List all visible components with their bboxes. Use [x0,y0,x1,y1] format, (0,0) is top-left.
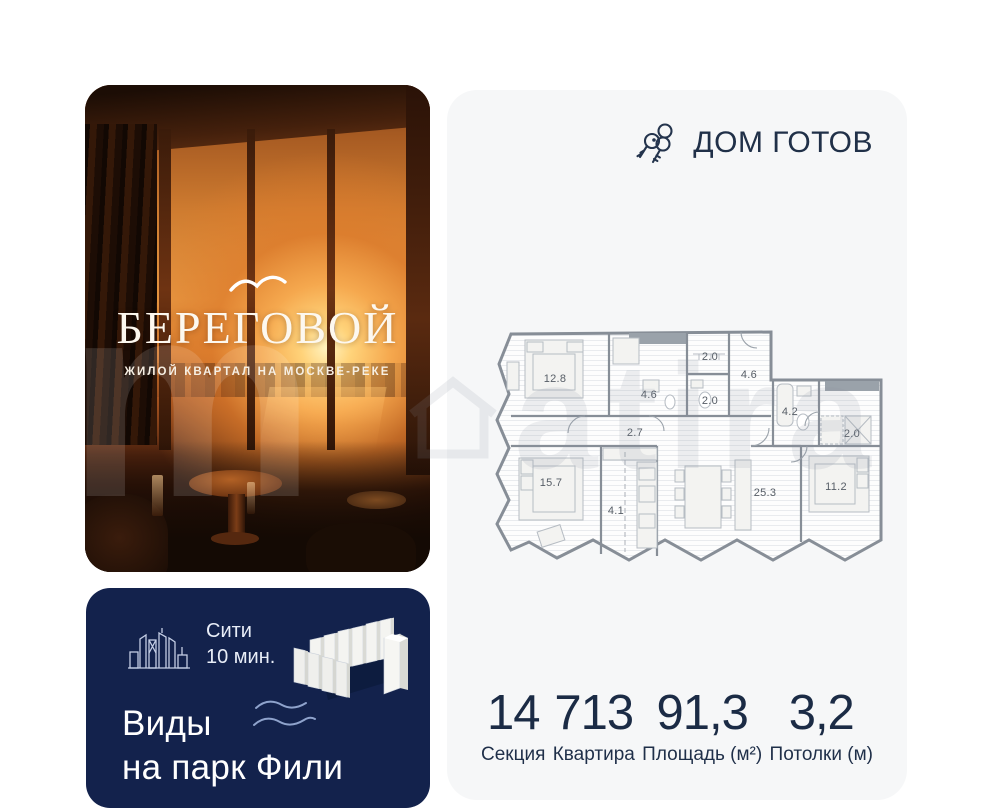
stat-value: 713 [553,688,635,739]
room-area-label: 4.1 [608,505,624,517]
seagull-icon [229,273,287,297]
stat-label: Площадь (м²) [642,744,762,766]
listing-card: ДОМ ГОТОВ [447,90,907,800]
stat-area: 91,3 Площадь (м²) [642,688,762,766]
floorplan: 12.84.62.02.04.62.74.22.015.74.125.311.2 [489,318,885,579]
building-complex-illustration [288,608,416,708]
armchair-silhouette [306,523,416,572]
room-area-label: 2.0 [844,428,860,440]
keys-icon [634,120,680,166]
room-area-label: 2.7 [627,427,643,439]
room-area-label: 4.6 [641,389,657,401]
stat-label: Потолки (м) [770,744,873,766]
room-area-label: 11.2 [825,481,847,493]
room-area-label: 25.3 [754,487,777,499]
photo-card: m БЕРЕГОВОЙ ЖИЛОЙ КВАРТАЛ НА МОСКВЕ-РЕКЕ [85,85,430,572]
room-area-label: 4.2 [782,406,798,418]
stats-row: 14 Секция 713 Квартира 91,3 Площадь (м²)… [481,688,873,766]
room-area-label: 12.8 [544,373,567,385]
stat-ceiling: 3,2 Потолки (м) [770,688,873,766]
brand-block: БЕРЕГОВОЙ ЖИЛОЙ КВАРТАЛ НА МОСКВЕ-РЕКЕ [85,273,430,378]
room-area-label: 2.0 [702,351,718,363]
views-title: Виды на парк Фили [122,702,343,790]
stat-value: 14 [481,688,545,739]
stat-section: 14 Секция [481,688,545,766]
stat-value: 3,2 [770,688,873,739]
house-ready-header: ДОМ ГОТОВ [634,120,873,166]
room-area-label: 15.7 [540,477,563,489]
room-area-label: 2.0 [702,395,718,407]
citi-line2: 10 мин. [206,644,275,670]
views-line1: Виды [122,702,343,746]
views-line2: на парк Фили [122,746,343,790]
stat-label: Квартира [553,744,635,766]
city-distance-text: Сити 10 мин. [206,618,275,670]
info-card: Сити 10 мин. [86,588,430,808]
room-area-label: 4.6 [741,369,757,381]
plate [347,491,406,509]
brand-title: БЕРЕГОВОЙ [85,301,430,354]
stat-apartment: 713 Квартира [553,688,635,766]
citi-line1: Сити [206,618,275,644]
stat-label: Секция [481,744,545,766]
moscow-city-skyline-icon [126,626,192,670]
city-distance-badge: Сити 10 мин. [126,618,275,670]
brand-subtitle: ЖИЛОЙ КВАРТАЛ НА МОСКВЕ-РЕКЕ [85,366,430,378]
stat-value: 91,3 [642,688,762,739]
house-ready-label: ДОМ ГОТОВ [693,121,873,165]
